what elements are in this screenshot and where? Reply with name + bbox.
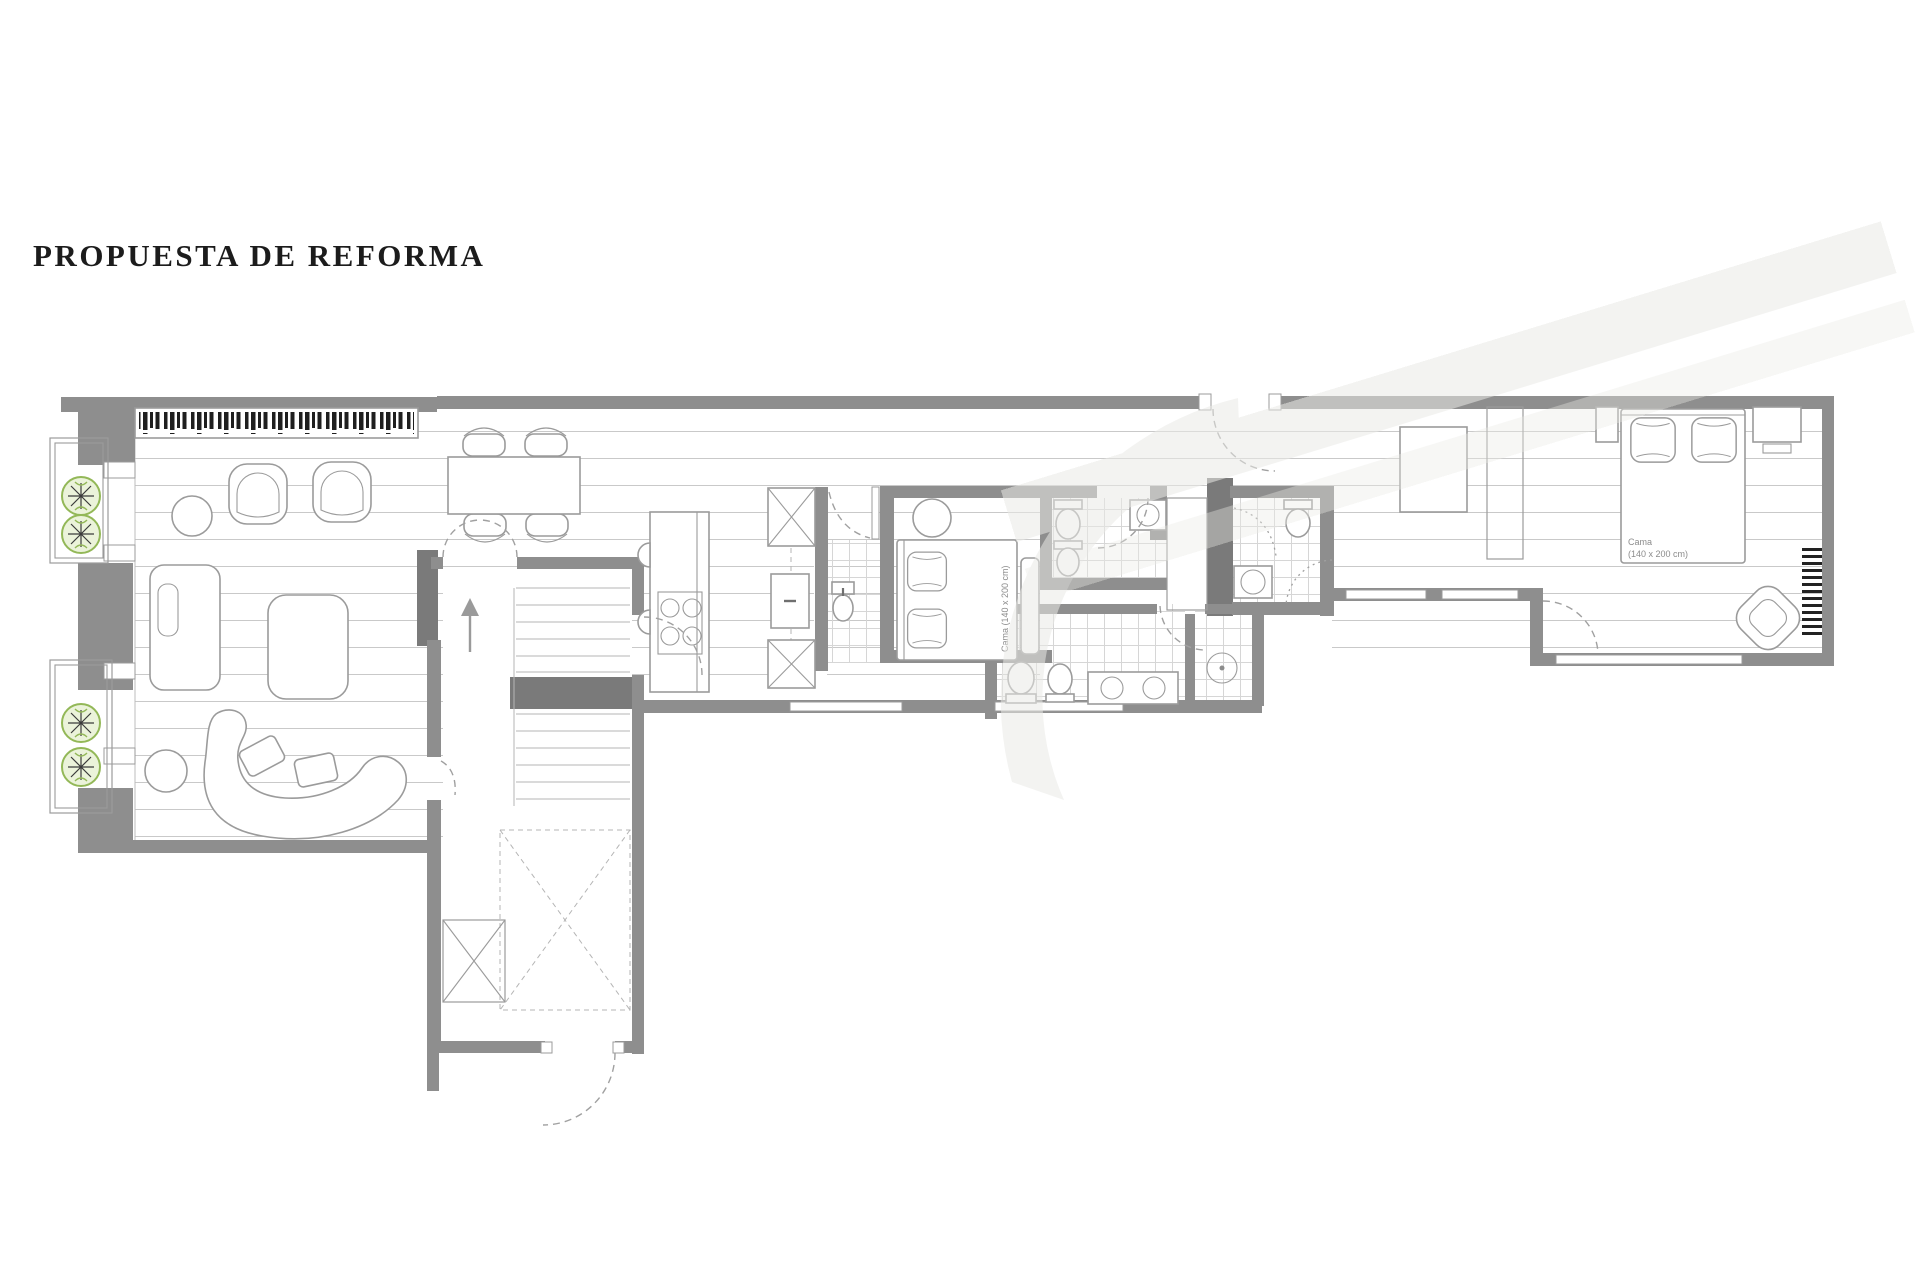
kitchen-tall-units (768, 488, 815, 688)
radiator-icon (1802, 545, 1822, 637)
washbasin-counter (1234, 566, 1272, 598)
outside-mask (632, 713, 1282, 853)
stair-mid-wall (510, 677, 632, 709)
nightstand (1753, 407, 1801, 442)
entrance-door-arc (543, 1053, 615, 1125)
bed-label: Cama (1628, 537, 1652, 547)
pillow (1692, 418, 1736, 462)
plant-icon (62, 477, 100, 515)
bidet (1048, 664, 1072, 694)
floor-plan-drawing: Cama (140 x 200 cm) (0, 0, 1920, 1280)
books-icon (139, 412, 414, 434)
pillow (908, 552, 947, 591)
dining-table (448, 457, 580, 514)
sofa-corner (150, 565, 220, 690)
pillow (908, 609, 947, 648)
plant-icon (62, 748, 100, 786)
armchair (229, 464, 287, 524)
bookshelf (135, 408, 418, 438)
side-table-round (145, 750, 187, 792)
door-leaf (872, 487, 879, 539)
bed-size-label: (140 x 200 cm) (1628, 549, 1688, 559)
ottoman (268, 595, 348, 699)
bidet-tank (1046, 694, 1074, 702)
side-table-round (172, 496, 212, 536)
plant-icon (62, 515, 100, 553)
plant-icon (62, 704, 100, 742)
pillow (1631, 418, 1675, 462)
page: PROPUESTA DE REFORMA (0, 0, 1920, 1280)
bedside-table-round (913, 499, 951, 537)
wc-small-fixture (832, 582, 854, 621)
armchair (313, 462, 371, 522)
